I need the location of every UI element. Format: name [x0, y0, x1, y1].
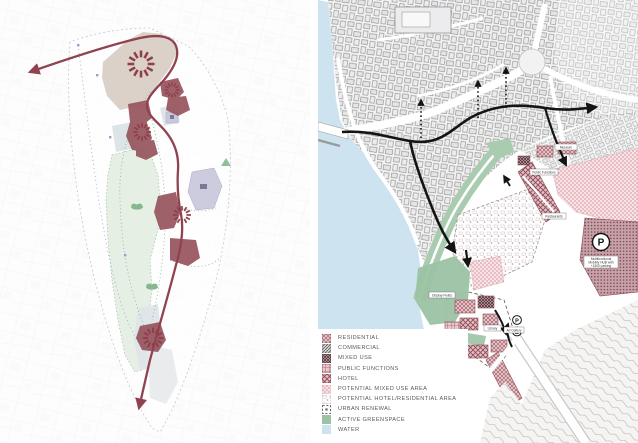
legend-row-active-greenspace: ACTIVE GREENSPACE — [322, 415, 482, 425]
legend-row-hotel: HOTEL — [322, 374, 482, 384]
legend-row-water: WATER — [322, 425, 482, 435]
parking-small-badge: P — [513, 316, 522, 325]
urban-planning-poster: P P B Museum Public Functions — [0, 0, 638, 443]
large-civic-building — [395, 7, 451, 33]
svg-text:P: P — [515, 319, 519, 325]
parking-badge: P — [593, 234, 610, 251]
museum-label: Museum — [555, 144, 577, 150]
legend-row-potential-mixed-use: POTENTIAL MIXED USE AREA — [322, 384, 482, 394]
commercial-swatch — [322, 344, 331, 353]
legend-row-commercial: COMMERCIAL — [322, 343, 482, 353]
legend-label: RESIDENTIAL — [338, 335, 379, 341]
active-greenspace-swatch — [322, 415, 331, 424]
concept-map-panel — [0, 0, 310, 443]
svg-text:Public Functions: Public Functions — [532, 170, 556, 174]
legend: RESIDENTIAL COMMERCIAL MIXED USE PUBLIC … — [322, 333, 482, 435]
legend-label: POTENTIAL MIXED USE AREA — [338, 386, 427, 392]
legend-row-urban-renewal: URBAN RENEWAL — [322, 404, 482, 414]
urban-renewal-swatch — [322, 405, 331, 414]
mobility-hub-label: Multifunctional Mobility HUB with +1500 … — [584, 256, 618, 268]
legend-label: WATER — [338, 427, 360, 433]
legend-row-public-functions: PUBLIC FUNCTIONS — [322, 364, 482, 374]
landmark-icon-small — [170, 115, 174, 119]
legend-label: PUBLIC FUNCTIONS — [338, 366, 399, 372]
svg-text:Restaurants: Restaurants — [545, 214, 563, 218]
legend-row-mixed-use: MIXED USE — [322, 353, 482, 363]
legend-row-potential-hotel-residential: POTENTIAL HOTEL/RESIDENTIAL AREA — [322, 394, 482, 404]
svg-text:+1500 parking: +1500 parking — [591, 264, 612, 268]
mixed-use-swatch — [322, 354, 331, 363]
svg-text:Art Gallery: Art Gallery — [506, 328, 521, 332]
potential-hotel-residential-swatch — [322, 395, 331, 404]
concept-map — [0, 0, 310, 443]
public-functions-swatch — [322, 364, 331, 373]
residential-swatch — [322, 334, 331, 343]
legend-label: MIXED USE — [338, 355, 372, 361]
legend-row-residential: RESIDENTIAL — [322, 333, 482, 343]
svg-text:P: P — [598, 238, 605, 249]
tree-icon — [146, 284, 158, 290]
potential-mixed-use-swatch — [322, 385, 331, 394]
restaurants-label: Restaurants — [542, 213, 566, 219]
library-label: Library — [484, 325, 501, 331]
svg-text:Library: Library — [488, 326, 498, 330]
masterplan-panel: P P B Museum Public Functions — [318, 0, 638, 443]
tree-icon — [131, 204, 143, 210]
roundabout — [519, 49, 545, 75]
svg-text:Museum: Museum — [560, 145, 573, 149]
svg-text:Display Fields: Display Fields — [432, 293, 452, 297]
public-functions-label: Public Functions — [530, 169, 558, 175]
legend-label: URBAN RENEWAL — [338, 406, 392, 412]
legend-label: ACTIVE GREENSPACE — [338, 417, 405, 423]
gallery-label: Art Gallery — [504, 327, 524, 333]
hotel-swatch — [322, 374, 331, 383]
landmark-icon — [200, 184, 207, 189]
legend-label: HOTEL — [338, 376, 359, 382]
water-swatch — [322, 425, 331, 434]
legend-label: COMMERCIAL — [338, 345, 380, 351]
legend-label: POTENTIAL HOTEL/RESIDENTIAL AREA — [338, 396, 456, 402]
display-fields-label: Display Fields — [429, 292, 455, 298]
